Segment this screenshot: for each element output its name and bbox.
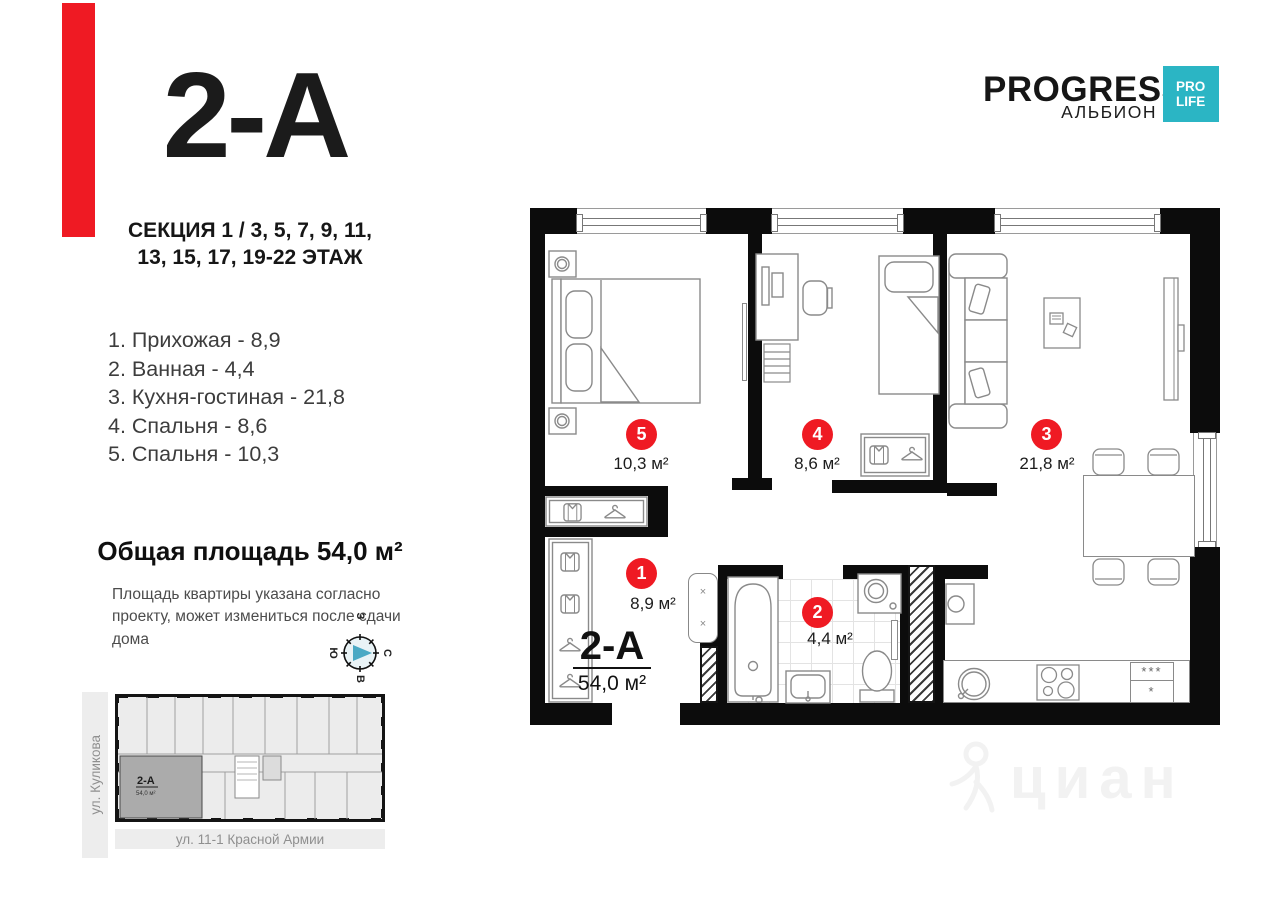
nightstand <box>548 250 577 278</box>
total-area-heading: Общая площадь 54,0 м² <box>80 536 420 567</box>
wall-segment <box>648 486 668 537</box>
cooktop-svg <box>1036 664 1080 701</box>
bathroom-sink <box>785 670 831 704</box>
street-bottom-text: ул. 11-1 Красной Армии <box>176 832 324 847</box>
double-bed <box>551 278 701 404</box>
brand-logo-subtitle: АЛЬБИОН <box>983 102 1157 123</box>
plan-unit-divider <box>573 667 651 669</box>
room-list-item: 1. Прихожая - 8,9 <box>108 326 438 355</box>
note-line1: Площадь квартиры указана согласно <box>112 584 422 606</box>
wall-segment <box>732 478 772 490</box>
room-area-label-3: 21,8 м² <box>992 454 1102 474</box>
wall-segment <box>1190 547 1220 725</box>
nightstand-svg <box>548 250 577 278</box>
wall-segment <box>530 208 545 725</box>
room-list-item: 2. Ванная - 4,4 <box>108 355 438 384</box>
kitchen-sink-svg <box>955 665 993 703</box>
coffee-table <box>1043 297 1081 349</box>
dining-chair-svg <box>1146 447 1181 477</box>
compass: З С В Ю <box>330 616 392 686</box>
desk <box>755 253 799 341</box>
room-area-label-4: 8,6 м² <box>762 454 872 474</box>
street-label-left: ул. Куликова <box>82 692 108 858</box>
window <box>577 208 706 234</box>
brand-accent-bar <box>62 3 95 237</box>
double-bed-svg <box>551 278 701 404</box>
fridge-mark: * <box>1131 684 1173 699</box>
bathtub <box>727 576 779 703</box>
plan-unit-area: 54,0 м² <box>562 672 662 696</box>
minimap-building: 2-А 54,0 м² <box>115 694 385 822</box>
room-marker-number: 2 <box>812 602 822 623</box>
room-area-label-5: 10,3 м² <box>586 454 696 474</box>
room-list-item: 5. Спальня - 10,3 <box>108 440 438 469</box>
utility-shaft <box>908 565 935 703</box>
room-marker-number: 5 <box>636 424 646 445</box>
wall-shelf <box>742 303 747 381</box>
room-marker-2: 2 <box>802 597 833 628</box>
window <box>1193 433 1217 547</box>
compass-north-label: С <box>380 646 394 660</box>
wall-segment <box>706 208 772 234</box>
room-marker-5: 5 <box>626 419 657 450</box>
room-list-item: 3. Кухня-гостиная - 21,8 <box>108 383 438 412</box>
tv-panel <box>1163 277 1190 401</box>
washing-machine <box>857 573 902 614</box>
dining-chair <box>1091 557 1126 587</box>
unit-code-title: 2-А <box>110 48 400 182</box>
cian-watermark-text: циан <box>1010 745 1185 812</box>
desk-chair <box>800 276 834 320</box>
shelving-svg <box>763 343 791 383</box>
utility-shaft <box>700 646 718 703</box>
apartment-floor-plan: × × <box>530 208 1220 725</box>
room-area-label-2: 4,4 м² <box>775 629 885 649</box>
nightstand <box>548 407 577 435</box>
room-list-item: 4. Спальня - 8,6 <box>108 412 438 441</box>
brand-badge: PRO LIFE <box>1163 66 1219 122</box>
section-line1: СЕКЦИЯ 1 / 3, 5, 7, 9, 11, <box>80 218 420 245</box>
room-area-label-1: 8,9 м² <box>598 594 708 614</box>
toilet-svg <box>858 648 896 704</box>
cian-watermark-figure-icon <box>946 738 1000 818</box>
kitchen-sink <box>955 665 993 703</box>
cabinet-mark: × <box>700 618 706 630</box>
minimap-unit-area: 54,0 м² <box>136 791 155 797</box>
tv-panel-svg <box>1163 277 1190 401</box>
section-info: СЕКЦИЯ 1 / 3, 5, 7, 9, 11, 13, 15, 17, 1… <box>80 218 420 272</box>
dining-table <box>1083 475 1195 557</box>
desk-chair-svg <box>800 276 834 320</box>
kitchen-cabinet-svg <box>945 583 975 625</box>
built-in-wardrobe <box>545 496 648 527</box>
badge-line2: LIFE <box>1176 94 1205 109</box>
room-marker-4: 4 <box>802 419 833 450</box>
street-left-text: ул. Куликова <box>88 735 103 815</box>
wall-segment <box>903 208 995 234</box>
coffee-table-svg <box>1043 297 1081 349</box>
room-marker-number: 1 <box>636 563 646 584</box>
room-marker-1: 1 <box>626 558 657 589</box>
wardrobe-svg <box>545 496 648 527</box>
shelving-unit <box>763 343 791 383</box>
section-line2: 13, 15, 17, 19-22 ЭТАЖ <box>80 245 420 272</box>
dining-chair <box>1146 557 1181 587</box>
fridge: *** * <box>1130 662 1174 703</box>
room-list: 1. Прихожая - 8,9 2. Ванная - 4,4 3. Кух… <box>108 326 438 469</box>
fridge-freezer-marks: *** <box>1131 664 1173 681</box>
bathroom-sink-svg <box>785 670 831 704</box>
bathtub-svg <box>727 576 779 703</box>
window <box>772 208 903 234</box>
room-marker-number: 4 <box>812 424 822 445</box>
compass-west-label: З <box>353 609 367 623</box>
desk-svg <box>755 253 799 341</box>
dining-chair-svg <box>1146 557 1181 587</box>
sofa-svg <box>948 253 1012 429</box>
wall-segment <box>680 703 1220 725</box>
single-bed-svg <box>878 255 940 395</box>
street-label-bottom: ул. 11-1 Красной Армии <box>115 829 385 849</box>
single-bed <box>878 255 940 395</box>
badge-line1: PRO <box>1176 79 1205 94</box>
kitchen-cabinet <box>945 583 975 625</box>
wall-segment <box>947 483 997 496</box>
sofa <box>948 253 1012 429</box>
minimap-building-svg: 2-А 54,0 м² <box>115 694 385 822</box>
wall-segment <box>1190 208 1220 433</box>
washing-machine-svg <box>857 573 902 614</box>
floor-plan-page: 2-А СЕКЦИЯ 1 / 3, 5, 7, 9, 11, 13, 15, 1… <box>0 0 1280 906</box>
dining-chair-svg <box>1091 557 1126 587</box>
room-marker-3: 3 <box>1031 419 1062 450</box>
compass-south-label: Ю <box>326 646 340 660</box>
nightstand-svg <box>548 407 577 435</box>
wall-segment <box>832 480 947 493</box>
cooktop <box>1036 664 1080 701</box>
minimap-unit-code: 2-А <box>137 775 155 787</box>
dining-chair <box>1146 447 1181 477</box>
wall-segment <box>718 565 727 703</box>
window <box>995 208 1160 234</box>
cian-watermark: циан <box>946 738 1185 818</box>
plan-unit-code: 2-А <box>562 624 662 669</box>
toilet <box>858 648 896 704</box>
compass-east-label: В <box>353 672 367 686</box>
wall-segment <box>530 703 612 725</box>
room-marker-number: 3 <box>1041 424 1051 445</box>
